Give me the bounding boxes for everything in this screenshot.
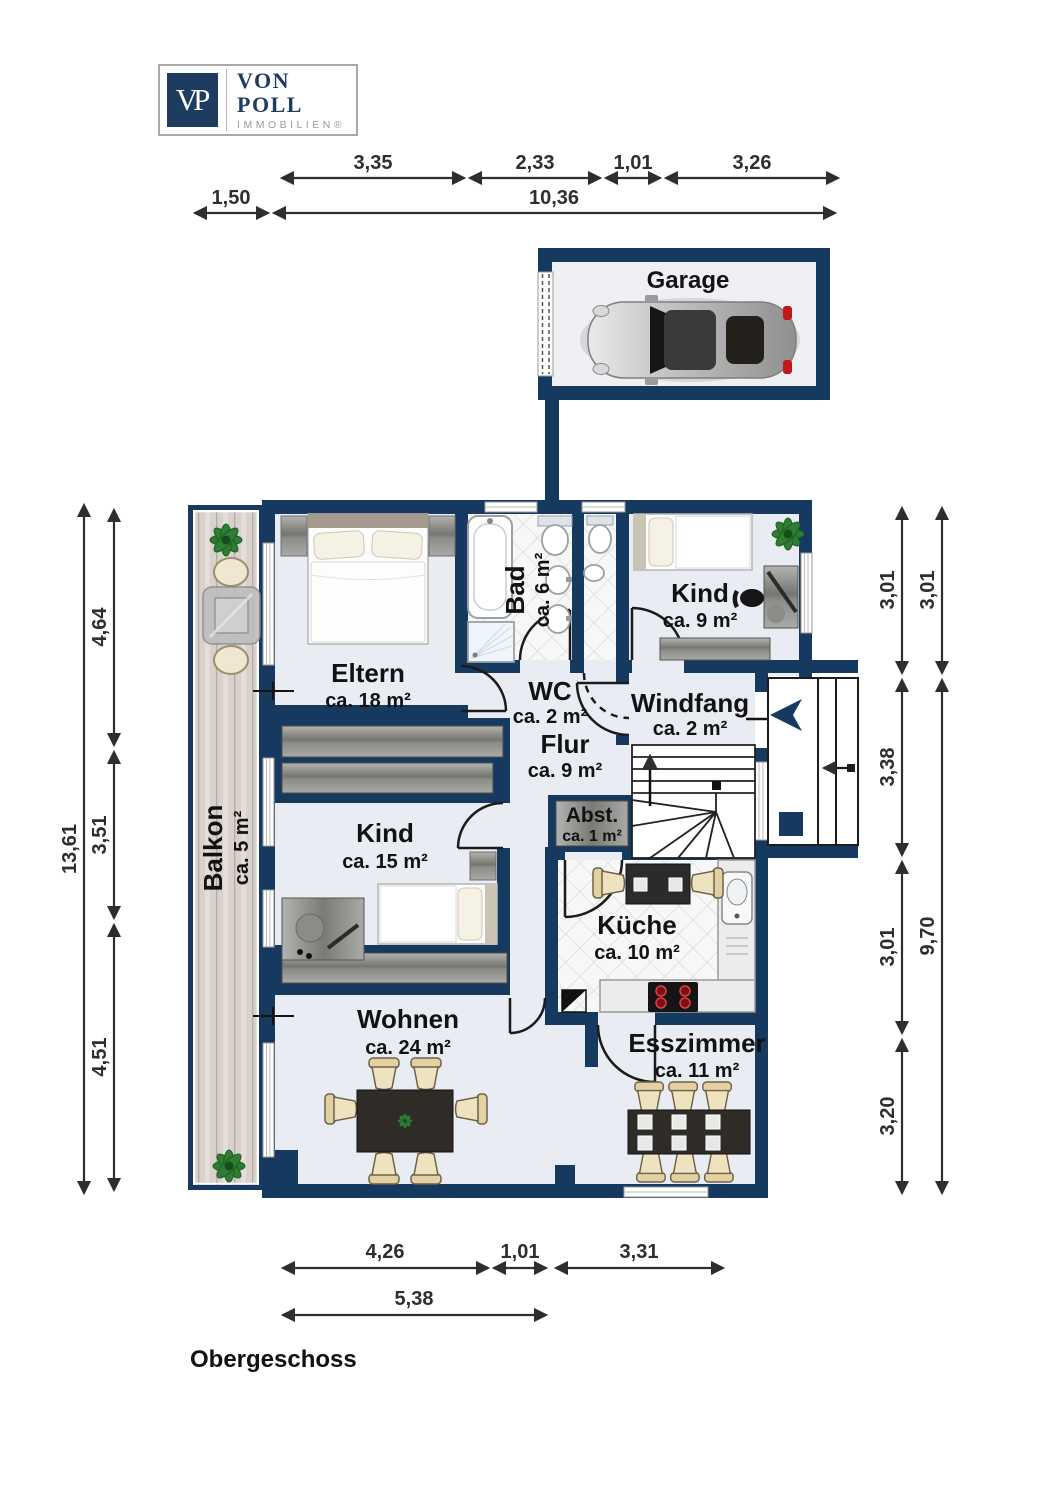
dim-right-outer-total: 9,70 (917, 917, 939, 956)
window (263, 543, 274, 665)
staircase (632, 745, 755, 858)
dim-left-2: 3,51 (89, 816, 111, 855)
entrance-exterior (768, 678, 858, 845)
desk-icon (764, 566, 798, 628)
esszimmer-name: Esszimmer (628, 1028, 765, 1058)
double-bed-icon (308, 514, 428, 644)
bad-name: Bad (500, 565, 530, 614)
floorplan-drawing: 3,35 2,33 1,01 3,26 1,50 10,36 13,61 4,6… (0, 0, 1060, 1500)
window (582, 502, 625, 512)
abst-area: ca. 1 m² (562, 828, 622, 845)
kueche-name: Küche (597, 910, 676, 940)
abst-name: Abst. (566, 804, 619, 827)
desk-icon (282, 898, 364, 960)
dim-top-4: 3,26 (733, 152, 772, 174)
abstellraum: Abst. ca. 1 m² (556, 801, 628, 846)
plant-icon (772, 518, 804, 550)
dim-top-2: 2,33 (516, 152, 555, 174)
dimension-lines-right (902, 508, 942, 1193)
dimension-lines-top (195, 178, 838, 213)
bad-area: ca. 6 m² (532, 552, 554, 627)
dim-right-2: 3,38 (877, 748, 899, 787)
wc-name: WC (528, 676, 572, 706)
nightstand-icon (470, 852, 496, 880)
flur-name: Flur (540, 729, 589, 759)
dim-right-outer-1: 3,01 (917, 571, 939, 610)
wardrobe-icon (282, 763, 493, 793)
window (755, 762, 768, 840)
flur-area: ca. 9 m² (528, 760, 603, 782)
car-icon (580, 295, 800, 385)
window (263, 1043, 274, 1157)
sideboard-icon (660, 638, 770, 660)
sink-icon (584, 565, 604, 581)
dim-right-1: 3,01 (877, 571, 899, 610)
garage-connector-wall (545, 398, 559, 502)
handrail-post (712, 781, 721, 790)
garage-label: Garage (647, 267, 730, 294)
kind9-area: ca. 9 m² (663, 610, 738, 632)
floorplan-page: VP VON POLL IMMOBILIEN® (0, 0, 1060, 1500)
dimension-labels-top: 3,35 2,33 1,01 3,26 1,50 10,36 (212, 152, 772, 209)
kueche-area: ca. 10 m² (594, 942, 680, 964)
plant-icon (213, 1150, 245, 1182)
stove-icon (648, 982, 698, 1012)
window (624, 1187, 708, 1197)
eltern-name: Eltern (331, 658, 405, 688)
dim-bottom-3: 3,31 (620, 1241, 659, 1263)
wardrobe-icon (281, 516, 307, 556)
plant-icon (210, 524, 242, 556)
windfang-area: ca. 2 m² (653, 718, 728, 740)
wohnen-area: ca. 24 m² (365, 1037, 451, 1059)
window (263, 890, 274, 947)
single-bed-icon (634, 514, 752, 570)
balkon-area: ca. 5 m² (231, 810, 253, 885)
balkon: Balkon ca. 5 m² (191, 508, 262, 1188)
kind9-name: Kind (671, 578, 729, 608)
windfang-name: Windfang (631, 688, 749, 718)
entrance-pillar (779, 812, 803, 836)
wardrobe-icon (429, 516, 455, 556)
dim-top-3: 1,01 (614, 152, 653, 174)
dim-top-total: 10,36 (529, 187, 579, 209)
dim-left-total: 13,61 (59, 824, 81, 874)
floor-title: Obergeschoss (190, 1346, 357, 1374)
dim-left-3: 4,51 (89, 1038, 111, 1077)
dim-bottom-1: 4,26 (366, 1241, 405, 1263)
balkon-name: Balkon (198, 805, 228, 892)
window (263, 758, 274, 846)
eltern-area: ca. 18 m² (325, 690, 411, 712)
wardrobe-icon (282, 726, 503, 757)
garage: Garage (538, 248, 830, 502)
toilet-icon (587, 516, 613, 553)
garage-door (538, 272, 553, 376)
dim-right-3: 3,01 (877, 928, 899, 967)
wc-area: ca. 2 m² (513, 706, 588, 728)
dim-top-left: 1,50 (212, 187, 251, 209)
dim-bottom-total: 5,38 (395, 1288, 434, 1310)
window (801, 553, 812, 633)
stair-arrow-base (847, 764, 855, 772)
kind15-name: Kind (356, 818, 414, 848)
dim-left-1: 4,64 (89, 607, 111, 647)
shower-icon (468, 622, 514, 662)
dimension-lines-bottom (283, 1268, 723, 1315)
wohnen-name: Wohnen (357, 1004, 459, 1034)
dim-right-4: 3,20 (877, 1097, 899, 1136)
dimension-labels-right: 3,01 3,38 3,01 3,20 3,01 9,70 (877, 571, 939, 1136)
esszimmer-area: ca. 11 m² (655, 1060, 740, 1082)
dim-top-1: 3,35 (354, 152, 393, 174)
dimension-labels-bottom: 4,26 1,01 3,31 5,38 (366, 1241, 659, 1310)
centerpiece-icon (398, 1114, 412, 1128)
dim-bottom-2: 1,01 (501, 1241, 540, 1263)
kind15-area: ca. 15 m² (342, 851, 428, 873)
window (485, 502, 537, 512)
